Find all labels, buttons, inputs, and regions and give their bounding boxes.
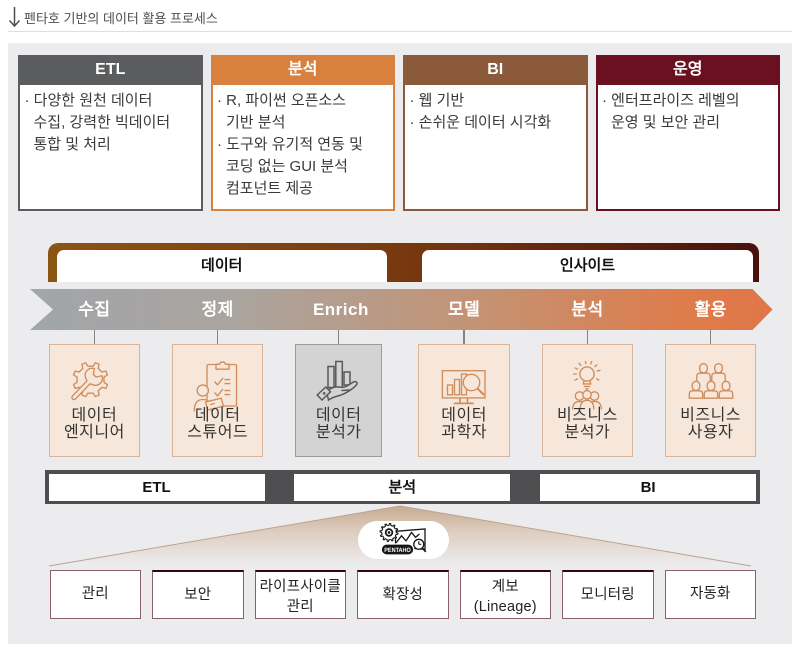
svg-text:PENTAHO: PENTAHO: [384, 547, 411, 554]
